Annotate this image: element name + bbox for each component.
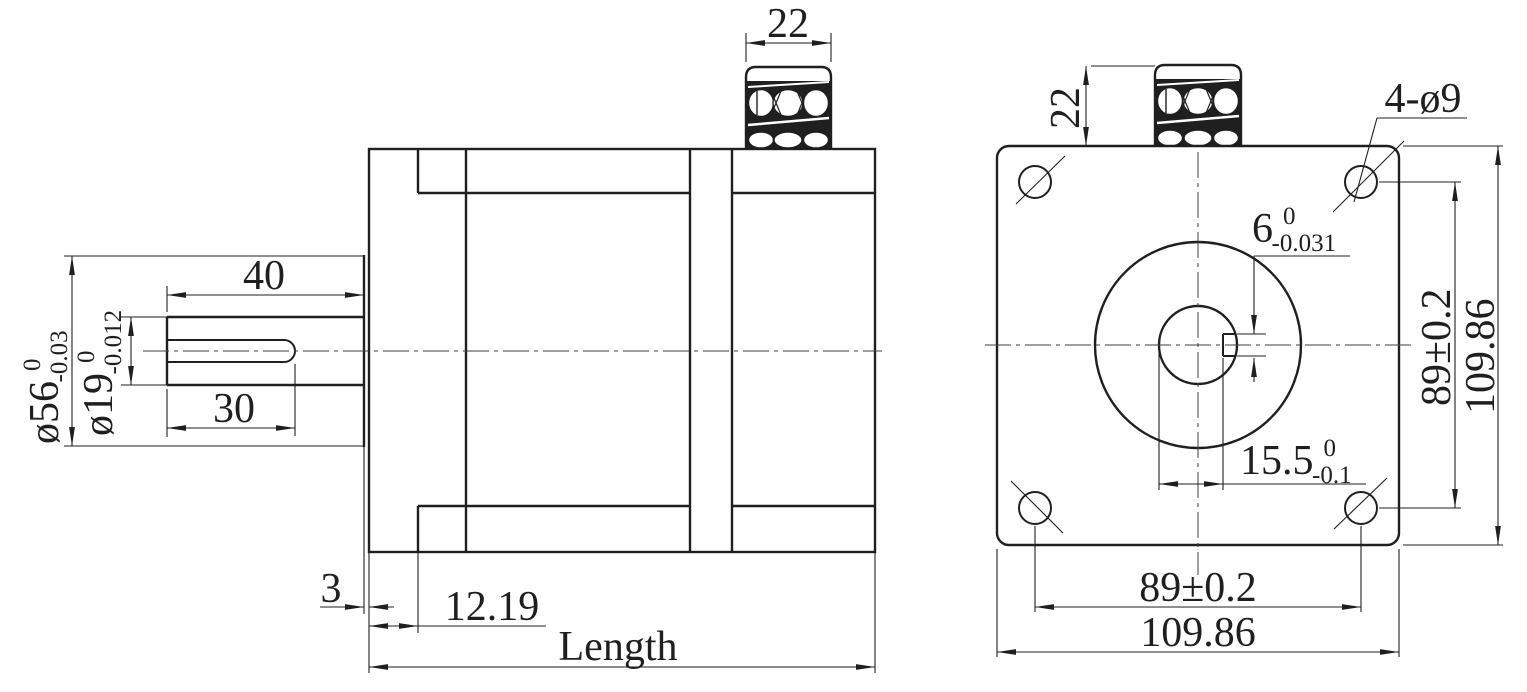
dim-mounting-holes-label: 4-ø9 — [1385, 76, 1462, 122]
dim-shaft-diameter-label: ø190-0.012 — [73, 310, 127, 436]
dim-pilot-diameter-label: ø560-0.03 — [19, 330, 73, 444]
dim-connector-width-label: 22 — [767, 1, 809, 47]
connector-front-view — [1155, 65, 1241, 147]
connector-side-view — [746, 67, 831, 149]
dim-connector-height-label: 22 — [1043, 87, 1089, 129]
dim-shaft-length-label: 40 — [243, 253, 285, 299]
dim-overall-length-label: Length — [559, 624, 678, 670]
dim-hole-spacing-h-label: 89±0.2 — [1139, 565, 1257, 611]
dim-flange-depth-label: 12.19 — [445, 584, 540, 630]
front-view: 22 4-ø9 60-0.031 15.50-0.1 89±0.2 109.86… — [985, 65, 1504, 657]
dim-frame-height-label: 109.86 — [1458, 299, 1504, 415]
technical-drawing-canvas: 22 40 30 3 12.19 Length ø560-0.03 ø190-0… — [0, 0, 1527, 692]
dim-keyway-depth-label: 15.50-0.1 — [1240, 435, 1352, 489]
dim-pilot-height-label: 3 — [321, 566, 342, 612]
dim-frame-width-label: 109.86 — [1140, 610, 1256, 656]
svg-text:ø190-0.012: ø190-0.012 — [73, 310, 127, 436]
drawing-sheet: 22 40 30 3 12.19 Length ø560-0.03 ø190-0… — [0, 0, 1527, 692]
svg-text:ø560-0.03: ø560-0.03 — [19, 330, 73, 444]
svg-text:109.86: 109.86 — [1458, 299, 1504, 415]
svg-text:22: 22 — [1043, 87, 1089, 129]
svg-text:89±0.2: 89±0.2 — [1414, 288, 1460, 406]
dim-hole-spacing-v-label: 89±0.2 — [1414, 288, 1460, 406]
dim-keyway-length-label: 30 — [213, 386, 255, 432]
side-view: 22 40 30 3 12.19 Length ø560-0.03 ø190-0… — [19, 1, 882, 673]
